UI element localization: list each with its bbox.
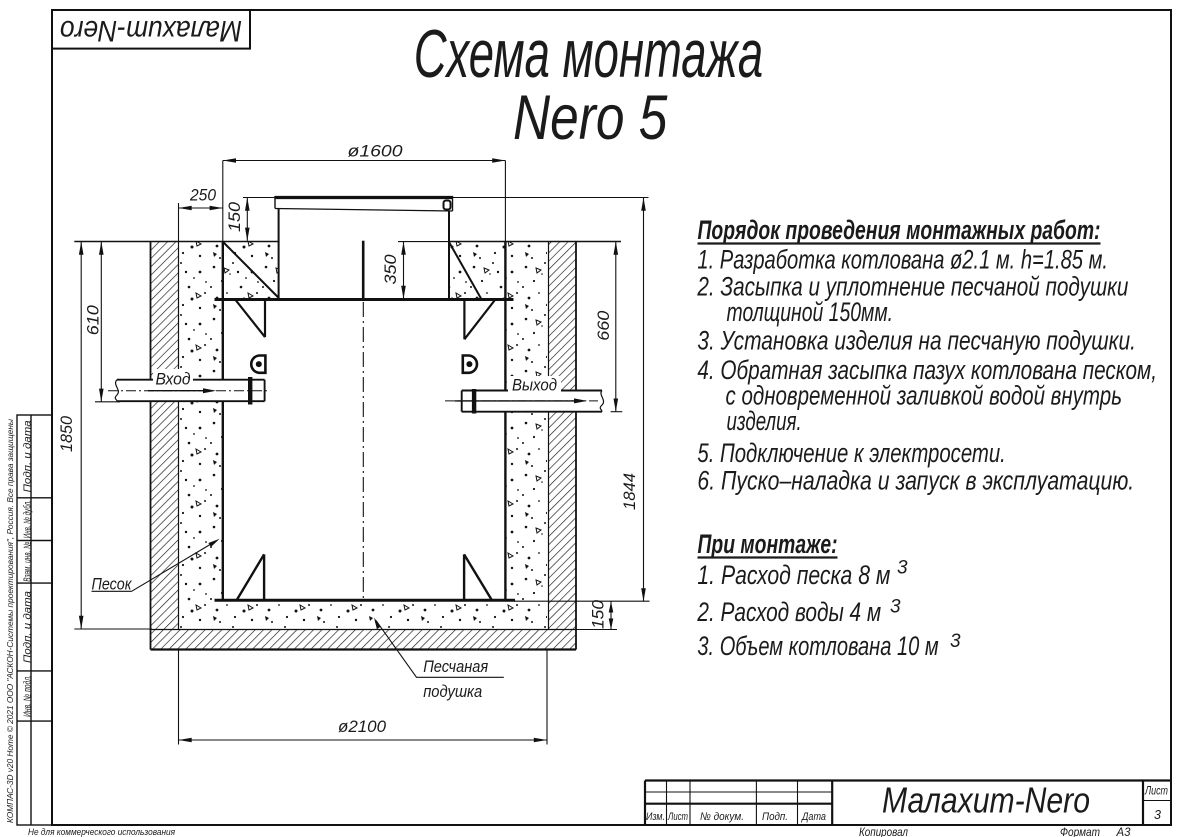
svg-text:2. Расход воды 4 м: 2. Расход воды 4 м <box>697 597 882 627</box>
svg-text:1844: 1844 <box>621 473 639 510</box>
svg-text:Подп.: Подп. <box>762 811 788 823</box>
svg-text:Дата: Дата <box>800 811 826 823</box>
svg-text:150: 150 <box>226 201 244 232</box>
svg-text:1850: 1850 <box>58 415 76 452</box>
svg-text:Порядок проведения монтажных р: Порядок проведения монтажных работ: <box>698 215 1101 245</box>
svg-text:изделия.: изделия. <box>727 406 802 436</box>
svg-text:150: 150 <box>590 599 608 629</box>
svg-text:Инв. № подл.: Инв. № подл. <box>23 675 34 717</box>
svg-text:Схема монтажа: Схема монтажа <box>414 16 763 92</box>
svg-text:6. Пуско–наладка и запуск в эк: 6. Пуско–наладка и запуск в эксплуатацию… <box>697 466 1134 496</box>
svg-text:5. Подключение к электросети.: 5. Подключение к электросети. <box>697 438 1005 468</box>
svg-text:Подп. и дата: Подп. и дата <box>23 420 34 492</box>
svg-text:А3: А3 <box>1116 825 1131 837</box>
svg-text:660: 660 <box>595 310 613 341</box>
svg-text:3: 3 <box>890 597 901 618</box>
svg-text:подушка: подушка <box>423 683 482 701</box>
svg-text:3: 3 <box>897 558 908 579</box>
svg-text:1. Расход песка 8 м: 1. Расход песка 8 м <box>697 560 890 590</box>
svg-text:3. Объем котлована 10 м: 3. Объем котлована 10 м <box>697 631 938 661</box>
svg-text:ø2100: ø2100 <box>338 718 387 736</box>
svg-text:Выход: Выход <box>512 377 557 395</box>
svg-text:Инв. № дубл.: Инв. № дубл. <box>22 500 34 538</box>
svg-text:Песчаная: Песчаная <box>423 658 488 676</box>
svg-text:250: 250 <box>189 187 217 205</box>
svg-text:При монтаже:: При монтаже: <box>698 529 838 559</box>
svg-text:толщиной 150мм.: толщиной 150мм. <box>727 297 894 327</box>
svg-text:Формат: Формат <box>1060 825 1100 837</box>
svg-text:Изм.: Изм. <box>646 811 665 823</box>
svg-text:Nero 5: Nero 5 <box>513 83 668 153</box>
svg-text:3: 3 <box>1154 808 1161 822</box>
svg-text:Лист: Лист <box>1144 784 1168 798</box>
svg-text:3: 3 <box>950 631 961 652</box>
svg-text:Малахит-Nero: Малахит-Nero <box>60 14 242 47</box>
svg-text:Малахит-Nero: Малахит-Nero <box>882 780 1090 821</box>
svg-text:610: 610 <box>85 304 103 335</box>
svg-text:Подп. и дата: Подп. и дата <box>23 591 34 663</box>
svg-text:Копировал: Копировал <box>859 825 908 837</box>
svg-text:Взам. инв. №: Взам. инв. № <box>23 542 34 582</box>
svg-text:3. Установка изделия на песчан: 3. Установка изделия на песчаную подушки… <box>697 325 1136 355</box>
svg-text:№ докум.: № докум. <box>700 811 744 823</box>
svg-text:Не для коммерческого использов: Не для коммерческого использования <box>28 827 175 837</box>
svg-text:1. Разработка котлована ø2.1 м: 1. Разработка котлована ø2.1 м. h=1.85 м… <box>697 245 1108 275</box>
svg-text:Лист: Лист <box>667 811 688 823</box>
svg-text:350: 350 <box>382 254 400 285</box>
svg-text:ø1600: ø1600 <box>348 143 404 161</box>
svg-text:КОМПАС-3D v20 Home © 2021 ООО: КОМПАС-3D v20 Home © 2021 ООО "АСКОН-Сис… <box>5 418 15 823</box>
svg-text:Вход: Вход <box>156 371 191 389</box>
